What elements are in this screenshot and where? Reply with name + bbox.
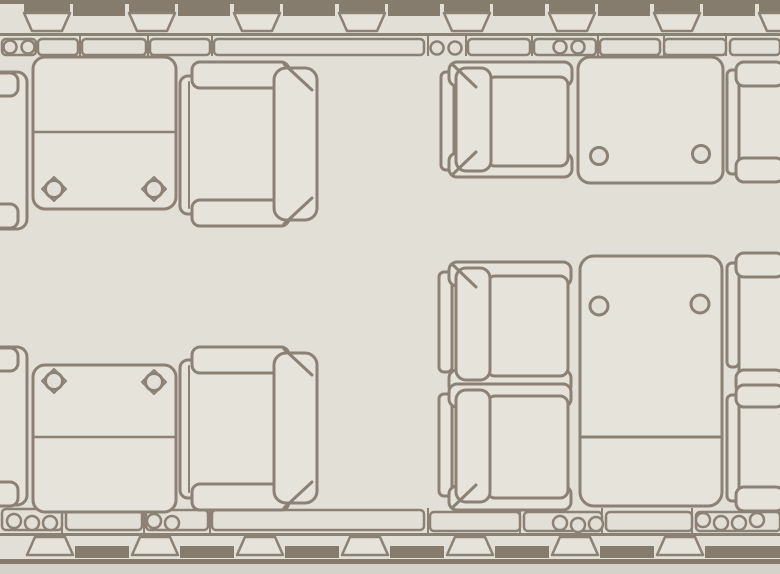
seat-left-edge-top [0,72,27,229]
cup-holder [165,516,179,530]
seat-bottom-left-facing-left [180,347,317,510]
sidewall-ledge [212,510,424,530]
seat-top-left-facing-left [180,62,317,226]
hull-line-bottom [0,559,780,564]
cup-holder [691,295,709,313]
seat-conference-left-lower [439,384,571,510]
cup-holder [591,148,608,165]
cup-holder [46,181,63,198]
wall-panel-bar [493,4,545,16]
cabin-window [132,537,178,555]
wall-panel-bar [598,4,650,16]
sidewall-ledge [82,39,146,55]
cup-holder [147,514,161,528]
cup-holder [43,516,57,530]
cup-holder [4,41,17,54]
wall-panel-bar [703,4,755,16]
cabin-window [27,537,73,555]
table-top-right [578,57,723,183]
outside-strip [0,564,780,574]
sidewall-ledge [600,39,660,55]
wall-panel-bar [283,4,335,16]
wall-panel-bar [73,4,125,16]
wall-panel-bar [753,546,780,558]
wall-panel-bar [285,546,339,558]
sidewall-ledge [606,512,692,531]
cup-holder [22,41,35,54]
wall-panel-bar [178,4,230,16]
cup-holder [146,181,163,198]
wall-panel-bar [705,546,759,558]
cup-holder [46,373,63,390]
cabin-window [549,13,595,31]
wall-panel-bar [495,546,549,558]
sidewall-ledge [730,39,780,55]
sidewall-ledge [214,39,424,55]
wall-panel-bar [180,546,234,558]
wall-panel-bar [75,546,129,558]
cabin-floor-plan-container [0,0,780,574]
cup-holder [431,42,444,55]
cabin-window [234,13,280,31]
cabin-floor-plan [0,0,780,574]
cabin-window [654,13,700,31]
seat-top-right-facing-right [441,62,572,177]
wall-panel-bar [388,4,440,16]
cup-holder [732,516,746,530]
wall-panel-bar [600,546,654,558]
seat-left-edge-bottom [0,347,27,506]
inner-wall-line-top [0,33,780,36]
cabin-window [237,537,283,555]
cabin-window [129,13,175,31]
cup-holder [589,517,603,531]
table-conference [580,256,722,506]
cabin-window [657,537,703,555]
sidewall-ledge [38,39,78,55]
sidewall-ledge [430,512,520,531]
cabin-window [342,537,388,555]
cup-holder [571,518,585,532]
sidewall-ledge [150,39,210,55]
inner-wall-line-bottom [0,533,780,536]
cup-holder [572,41,585,54]
sidewall-ledge [468,39,530,55]
seat-right-edge-top [727,62,780,182]
seat-conference-left-upper [439,262,571,394]
cabin-window [24,13,70,31]
cabin-window [447,537,493,555]
cup-holder [554,41,567,54]
cup-holder [750,513,764,527]
cabin-window [339,13,385,31]
cup-holder [553,516,567,530]
sidewall-ledge [664,39,726,55]
table-bottom-left [33,365,176,512]
seat-right-edge-lower [727,385,780,511]
cup-holder [25,516,39,530]
table-top-left [33,57,176,209]
cup-holder [449,42,462,55]
cup-holder [146,374,163,391]
cabin-window [444,13,490,31]
cup-holder [693,146,710,163]
cup-holder [714,516,728,530]
cup-holder [696,513,710,527]
cup-holder [7,514,21,528]
wall-panel-bar [390,546,444,558]
cabin-window [552,537,598,555]
cup-holder [590,297,608,315]
